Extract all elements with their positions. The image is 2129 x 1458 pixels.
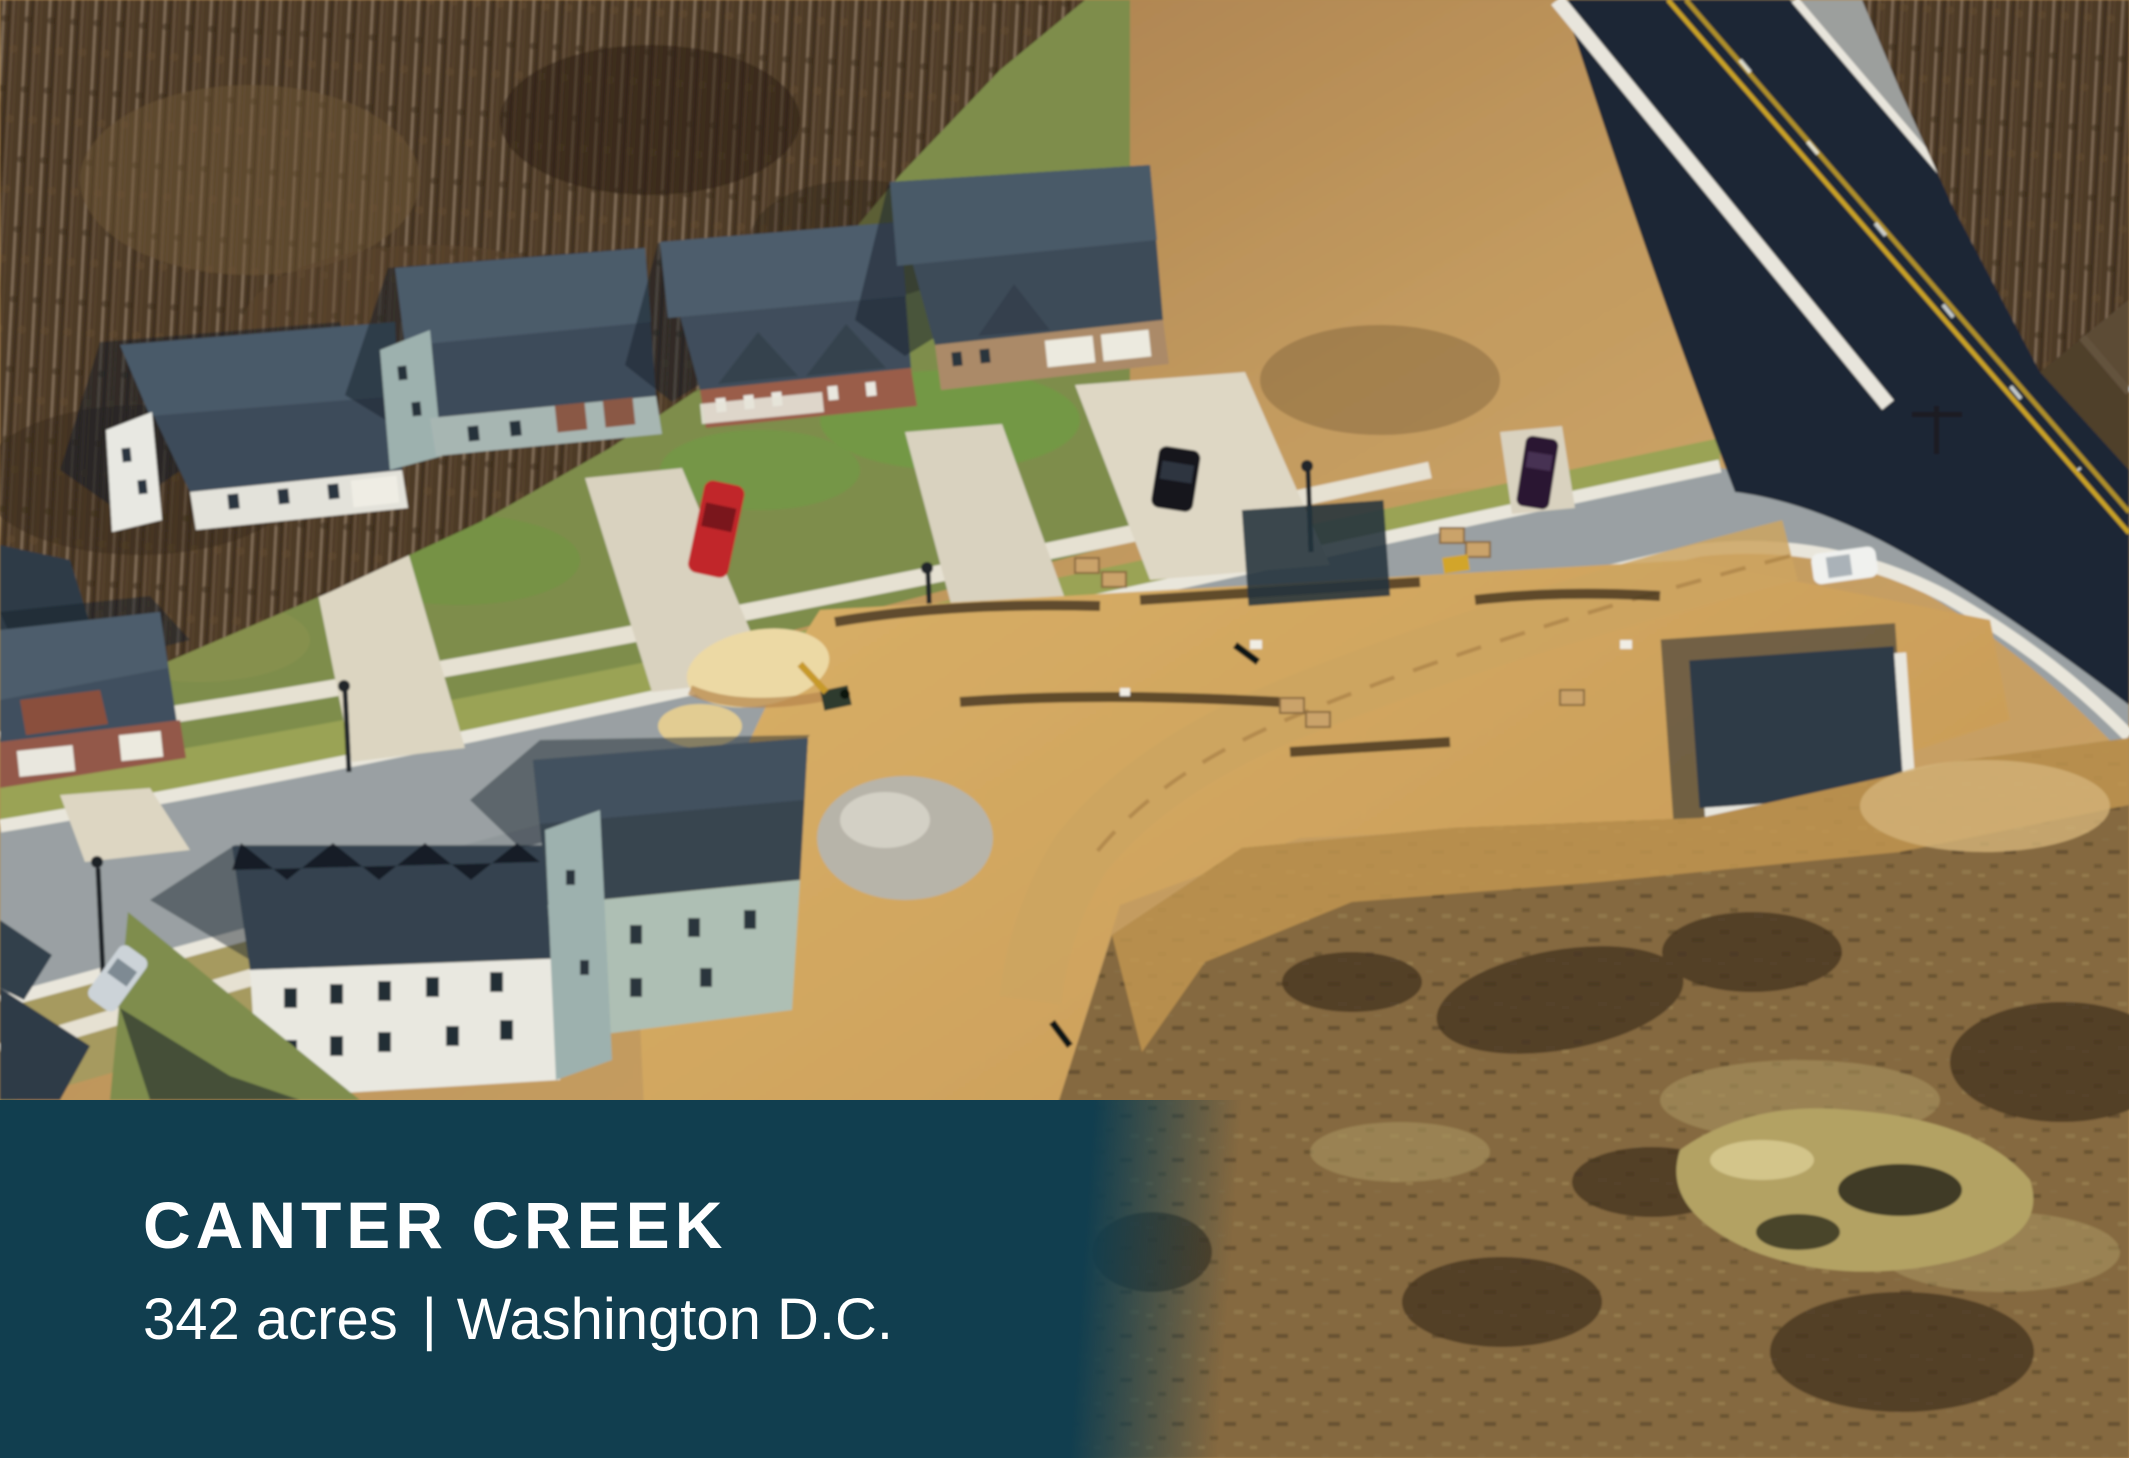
house-brick-left [0,596,190,788]
signal-arm [1912,412,1962,417]
foundation-slab [1242,500,1390,606]
project-stats: 342 acres|Washington D.C. [143,1291,893,1349]
caption-panel [0,1100,1255,1458]
dirt-scrub [1260,325,1500,435]
house-white-siding [60,322,408,532]
stats-separator: | [422,1291,437,1349]
project-title: CANTER CREEK [143,1192,727,1258]
acreage-text: 342 acres [143,1287,398,1352]
project-card: CANTER CREEK 342 acres|Washington D.C. [0,0,2129,1458]
location-text: Washington D.C. [457,1287,893,1352]
